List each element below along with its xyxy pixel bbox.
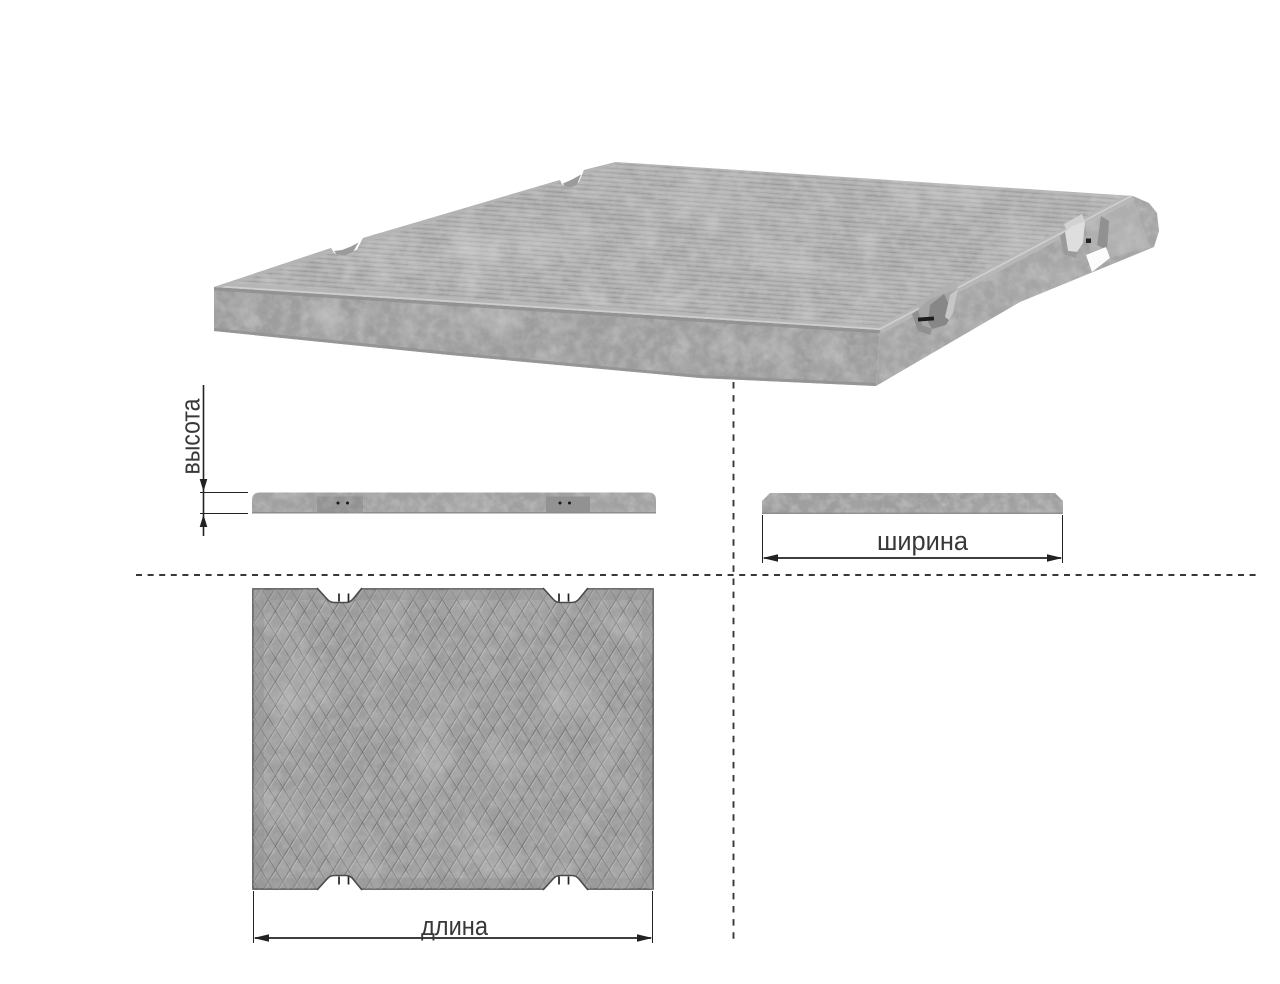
svg-text:ширина: ширина [877,526,969,556]
svg-text:длина: длина [421,911,489,941]
svg-text:высота: высота [176,398,206,475]
